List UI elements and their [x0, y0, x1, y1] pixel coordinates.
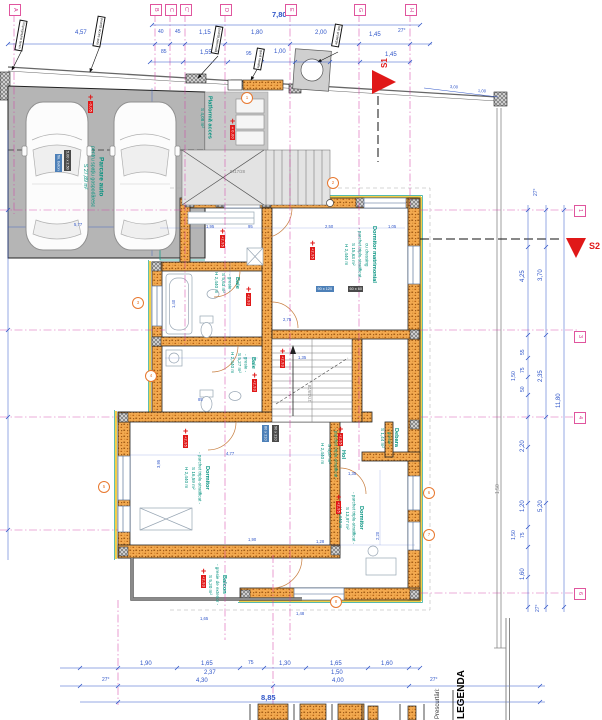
opening-tag: 90 x 120 [316, 286, 334, 292]
level-marker: +-0,05 [88, 94, 93, 113]
dim-label: 1,80 [251, 30, 263, 36]
dim-label: 1,95 [206, 225, 214, 229]
dim-label: 4,00 [332, 678, 344, 684]
dim-label: 1,50 [512, 530, 517, 540]
dim-label: 4,77 [226, 452, 234, 456]
dim-label: 27° [102, 678, 110, 683]
dim-label: 17x18/28 [308, 385, 312, 402]
ref-circle-7: 7 [423, 529, 435, 541]
level-marker: ++2,93 [246, 286, 251, 306]
dim-label: 75 [248, 661, 254, 666]
dim-label: 75 [521, 532, 526, 538]
level-marker: ++2,95 [336, 494, 341, 514]
legend-title: LEGENDA [456, 670, 467, 719]
dim-label: 1,65 [201, 661, 213, 667]
dim-label: 1,40 [172, 300, 176, 308]
ref-circle-6: 6 [423, 487, 435, 499]
dim-label: 1,28 [316, 540, 324, 544]
grid-bubble-E: E [285, 4, 297, 16]
legend-subtitle: Prescurtări: [435, 688, 441, 719]
dim-label: 1,65 [330, 661, 342, 667]
grid-bubble-C': C' [180, 4, 192, 16]
level-marker: ++2,95 [220, 228, 225, 248]
opening-tag: 80 x 210 [262, 425, 269, 442]
dim-label: 3,95 [157, 460, 161, 468]
dim-label: 9x17/28 [230, 170, 245, 174]
parking-label: Parcare autopentru spațiu gospodărescS 2… [80, 146, 105, 207]
ref-circle-3: 3 [132, 297, 144, 309]
dim-label: 1,05 [388, 225, 396, 229]
dim-label: 75 [521, 367, 526, 373]
level-marker: ++2,95 [310, 240, 315, 260]
dim-label: 2,75 [283, 318, 291, 322]
dim-label: 1,90 [248, 538, 256, 542]
master-bedroom-label: Dormitor matrimonialcu dressing- parchet… [342, 226, 378, 283]
dim-label: 4,57 [75, 30, 87, 36]
dim-label: 2,00 [315, 30, 327, 36]
dim-label: 1,65 [200, 617, 208, 621]
dim-label: 2,35 [538, 370, 544, 382]
dim-label: 1,50 [512, 371, 517, 381]
level-marker: ++2,93 [280, 348, 285, 368]
dim-label: 1,48 [296, 612, 304, 616]
balcony-label: Balcon- gresie de exterior -S 5,20 m² [206, 564, 228, 605]
grid-bubble-3: 3 [574, 331, 586, 343]
dim-label: 2,50 [325, 225, 333, 229]
section-marker-s2-label: S2 [589, 241, 600, 251]
dim-label: 95 [246, 52, 252, 57]
dim-label: 1,50 [496, 484, 501, 494]
opening-tag: fin. beton [55, 154, 62, 172]
section-marker-s1-label: S1 [380, 58, 389, 68]
bathroom-1-label: Baie- gresie -S 5,63 m²H 2,440 m [212, 272, 241, 293]
opening-tag: 60 x 60 [348, 286, 363, 292]
bedroom-1-label: Dormitor- parchet triplu-stratificat -S … [182, 452, 211, 504]
dim-label: 8,85 [261, 694, 276, 702]
dim-label: 27° [398, 29, 406, 34]
dim-label: 11,80 [556, 393, 562, 408]
dim-label: 27° [536, 604, 541, 612]
dim-label: 1,35 [298, 356, 306, 360]
level-marker: +±0,00 [230, 118, 235, 140]
grid-bubble-B: B [150, 4, 162, 16]
dim-label: 85 [198, 398, 203, 402]
grid-bubble-D: D [220, 4, 232, 16]
callout-leaders [12, 46, 338, 80]
dim-label: 1,30 [279, 661, 291, 667]
dim-label: 1,45 [385, 52, 397, 58]
dim-label: 27° [534, 188, 539, 196]
dim-label: 1,60 [520, 568, 526, 580]
pipe-culvert [293, 49, 332, 91]
level-marker: ++2,93 [201, 568, 206, 588]
dim-label: 5,77 [74, 223, 82, 227]
ref-circle-4: 4 [145, 370, 157, 382]
dim-label: 2,20 [520, 440, 526, 452]
dim-label: 2,37 [204, 670, 216, 676]
dim-label: 2,20 [376, 532, 380, 540]
ref-circle-2: 2 [327, 177, 339, 189]
dim-label: 1,20 [520, 500, 526, 512]
dim-label: 3,70 [538, 269, 544, 281]
grid-bubble-4: 4 [574, 412, 586, 424]
ref-circle-1: 1 [241, 92, 253, 104]
ref-circle-8: 8 [330, 596, 342, 608]
dim-label: 40 [158, 30, 164, 35]
dim-label: 27° [430, 678, 438, 683]
dim-label: 1,15 [199, 30, 211, 36]
storage-label: Debara- gresie -S 1,44 m² [378, 428, 400, 448]
floor-plan-drawing: S1 S2 LEGENDA Prescurtări: 7,804,5740451… [0, 0, 602, 720]
dim-label: 45 [175, 30, 181, 35]
level-marker: ++2,95 [338, 426, 343, 446]
dim-label: 3,00 [450, 85, 458, 90]
section-marker-s2 [566, 238, 586, 258]
gate [228, 80, 283, 90]
opening-tag: 90 x 210 [272, 425, 279, 442]
dim-label: 4,30 [196, 678, 208, 684]
dim-label: 95 [248, 225, 253, 229]
grid-bubble-6: 6 [574, 588, 586, 600]
dim-label: 55 [521, 349, 526, 355]
dim-label: 5,20 [538, 500, 544, 512]
dim-label: 1,90 [140, 661, 152, 667]
stairs-entry [182, 150, 334, 207]
dim-label: 1,45 [369, 32, 381, 38]
level-marker: ++2,95 [183, 428, 188, 448]
ref-circle-5: 5 [98, 481, 110, 493]
dim-label: 1,35 [348, 472, 356, 476]
dim-label: 1,00 [274, 49, 286, 55]
grid-bubble-1: 1 [574, 205, 586, 217]
dim-label: 1,50 [331, 670, 343, 676]
dim-label: 50 [521, 386, 526, 392]
grid-bubble-C: C [165, 4, 177, 16]
legend-samples [250, 618, 510, 720]
grid-bubble-G: G [354, 4, 366, 16]
level-marker: ++2,93 [252, 372, 257, 392]
grid-bubble-H: H [405, 4, 417, 16]
access-platform-label: Platformă accesS 4,08 m² [198, 96, 213, 139]
dim-label: 85 [161, 50, 167, 55]
dim-label: 1,00 [478, 89, 486, 94]
opening-tag: 5,00 x 2,50 [64, 150, 71, 171]
section-lines [378, 96, 562, 239]
dim-label: 4,25 [520, 270, 526, 282]
dim-label: 1,60 [381, 661, 393, 667]
grid-bubble-A: A [9, 4, 21, 16]
